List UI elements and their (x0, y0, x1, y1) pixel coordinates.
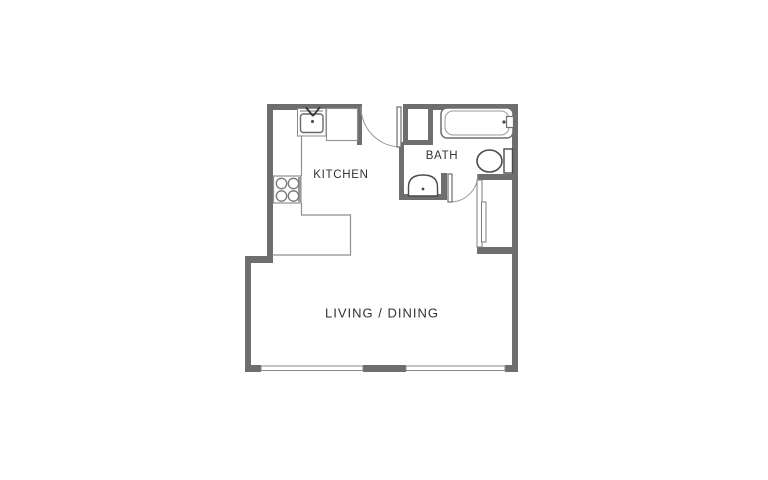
kitchen-peninsula-counter (273, 203, 351, 255)
wall-bottom-left-pier (245, 365, 261, 372)
wall-bath-sink-stub (441, 173, 447, 200)
wall-bottom-right-pier (505, 365, 518, 372)
bath-label: BATH (426, 150, 459, 162)
entry-door-leaf (397, 107, 401, 147)
wall-bottom-middle-pier (363, 365, 406, 372)
bath-sink (409, 175, 438, 196)
bathtub-drain (502, 120, 505, 123)
bath-door-leaf (448, 174, 452, 202)
stove-burner (276, 178, 286, 188)
kitchen-fixtures (273, 107, 358, 255)
stove-burner (276, 191, 286, 201)
bath-door-swing-arc (450, 174, 478, 202)
window-left (261, 366, 363, 371)
bathtub-faucet-plate (507, 117, 514, 128)
stove-burner (288, 178, 298, 188)
kitchen-counter-top (327, 109, 358, 141)
stove-burner (288, 191, 298, 201)
closet (477, 180, 486, 247)
kitchen-sink-basin (301, 114, 324, 133)
living-dining-label: LIVING / DINING (325, 306, 439, 321)
wall-chase (406, 107, 431, 143)
floor-plan-drawing: KITCHEN BATH LIVING / DINING (0, 0, 768, 480)
kitchen-sink-drain (311, 120, 314, 123)
entry-door-swing-arc (361, 107, 401, 147)
bath-sink-drain (422, 188, 425, 191)
wall-bath-south-right (477, 174, 518, 180)
wall-bath-west (399, 142, 404, 200)
window-right (406, 366, 505, 371)
wall-left-upper (267, 104, 273, 263)
wall-closet-south (477, 247, 518, 254)
wall-left-lower (245, 256, 251, 372)
bathtub (441, 108, 513, 138)
kitchen-label: KITCHEN (313, 169, 368, 181)
closet-sliding-door-panel (482, 202, 487, 242)
floor-plan-page: KITCHEN BATH LIVING / DINING (0, 0, 768, 480)
toilet-tank (504, 149, 513, 173)
wall-right (512, 104, 518, 372)
room-labels: KITCHEN BATH LIVING / DINING (313, 150, 458, 321)
toilet-bowl (477, 150, 502, 172)
